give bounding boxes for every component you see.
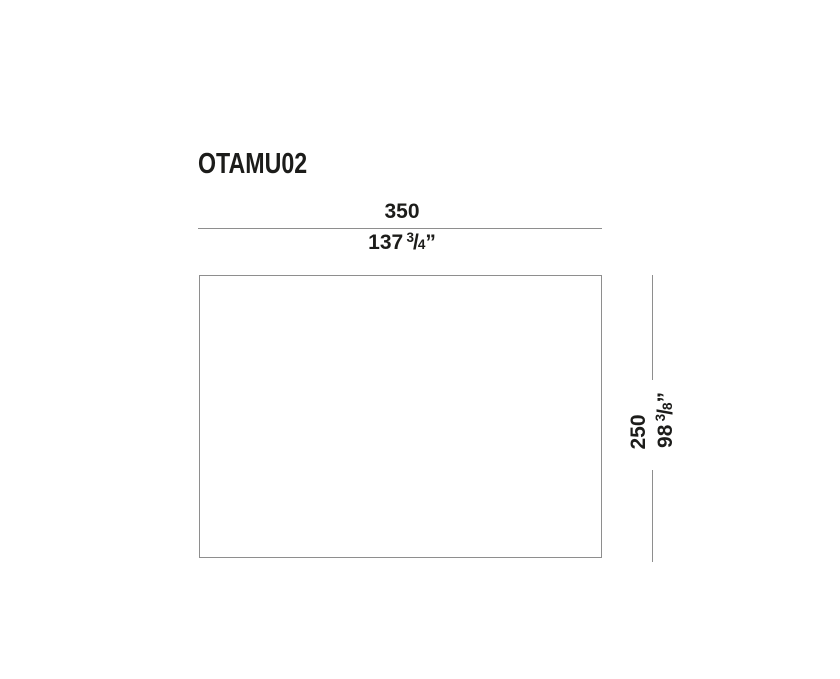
dimension-diagram: OTAMU02 350 1373/4” 250 983/8” bbox=[0, 0, 840, 679]
height-dimension-labels: 250 983/8” bbox=[625, 335, 679, 515]
height-imperial-fraction-numerator: 3 bbox=[653, 414, 668, 422]
height-imperial-fraction-denominator: 8 bbox=[660, 403, 675, 411]
height-imperial-label: 983/8” bbox=[652, 330, 679, 510]
width-metric-label: 350 bbox=[384, 201, 419, 222]
product-outline bbox=[199, 275, 602, 558]
height-metric-label: 250 bbox=[625, 342, 652, 522]
width-dimension-line bbox=[198, 228, 602, 229]
height-imperial-whole: 98 bbox=[654, 425, 677, 448]
width-imperial-unit: ” bbox=[425, 231, 436, 254]
product-code: OTAMU02 bbox=[198, 150, 307, 179]
height-imperial-unit: ” bbox=[654, 392, 677, 403]
width-imperial-whole: 137 bbox=[368, 231, 403, 254]
width-imperial-fraction-numerator: 3 bbox=[406, 230, 414, 245]
width-imperial-label: 1373/4” bbox=[368, 231, 436, 255]
